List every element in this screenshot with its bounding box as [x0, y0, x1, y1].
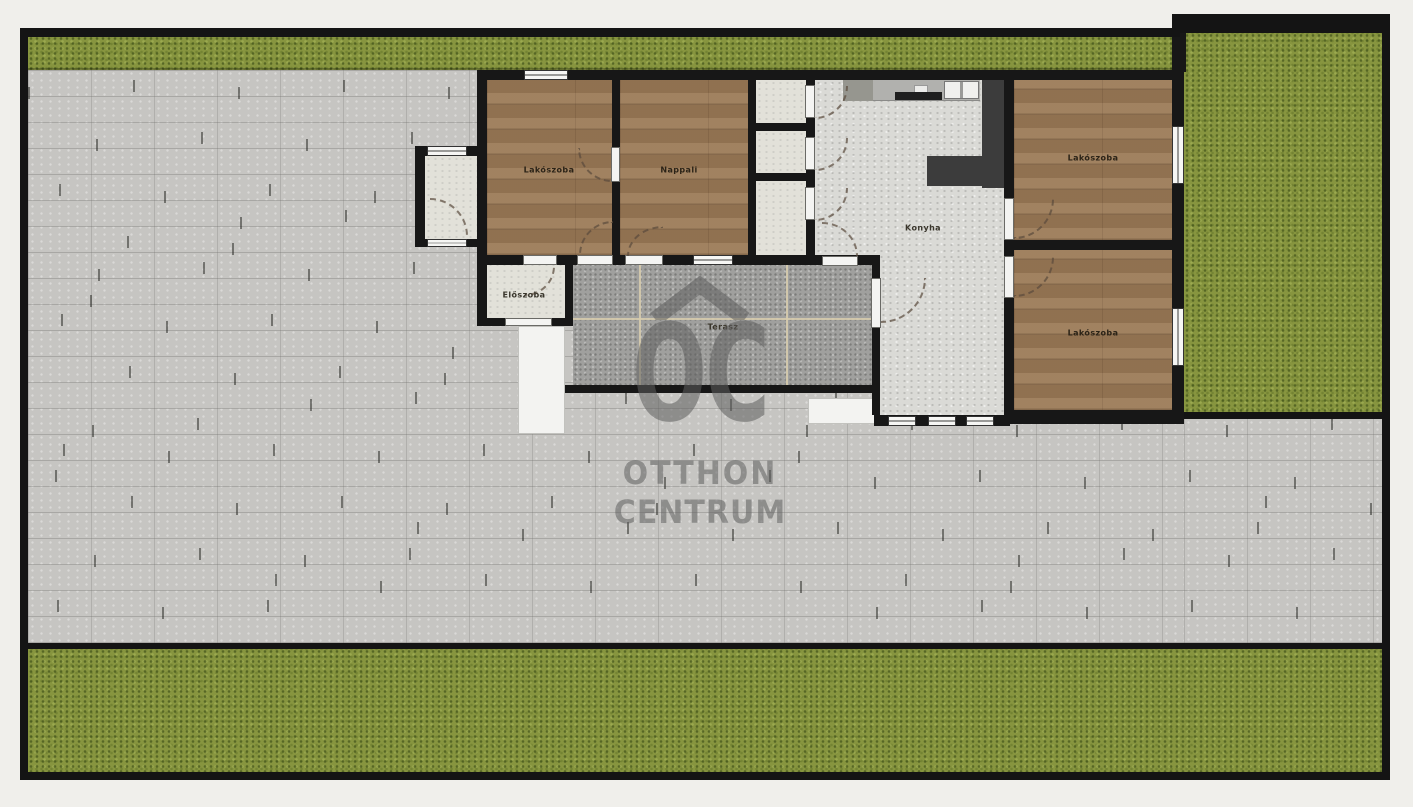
window	[966, 416, 994, 426]
door	[822, 256, 858, 266]
terrace-grid-line	[786, 262, 788, 385]
wall-segment	[748, 123, 815, 131]
wall-segment	[1172, 70, 1184, 424]
wall-segment	[565, 385, 880, 393]
window	[427, 146, 467, 156]
room-label-bedroom-3: Lakószoba	[1068, 329, 1119, 338]
window	[524, 70, 568, 80]
plot-border-top-right-step	[1172, 14, 1390, 33]
plot-border-bottom	[20, 772, 1390, 780]
window	[928, 416, 956, 426]
wall-segment	[1004, 410, 1184, 424]
door	[523, 255, 557, 265]
terrace-step-pad	[808, 398, 876, 424]
door	[611, 147, 620, 182]
room-label-living-room: Nappali	[660, 166, 697, 175]
room-label-bedroom-1: Lakószoba	[524, 166, 575, 175]
plot-border-right	[1382, 14, 1390, 780]
room-label-kitchen: Konyha	[905, 224, 941, 233]
window	[1172, 126, 1184, 184]
entry-walkway	[518, 326, 565, 434]
door	[871, 278, 881, 328]
kitchen-island-horizontal	[927, 156, 1008, 186]
terrace-grid-line	[639, 262, 641, 385]
room-label-entrance-hall: Előszoba	[503, 291, 546, 300]
window	[888, 416, 916, 426]
wall-segment	[415, 146, 425, 247]
kitchen-sink	[944, 81, 979, 99]
wall-segment	[1004, 80, 1014, 424]
wall-segment	[477, 70, 1184, 80]
paved-yard-right	[1184, 419, 1382, 643]
floorplan-canvas: Lakószoba Nappali Konyha Lakószoba Lakós…	[0, 0, 1413, 807]
door	[805, 137, 815, 170]
wall-segment	[1004, 240, 1184, 250]
door	[1004, 256, 1014, 298]
room-label-terrace: Terasz	[708, 323, 739, 332]
door	[805, 85, 815, 118]
wall-segment	[477, 80, 487, 326]
wall-segment	[565, 262, 573, 326]
floor-small-room-2	[756, 131, 806, 173]
entrance-door	[505, 318, 552, 326]
floor-small-room-3	[756, 181, 806, 255]
door	[577, 255, 613, 265]
window	[427, 239, 467, 247]
floor-small-room-1	[756, 80, 806, 123]
terrace-grid-line	[573, 318, 872, 320]
grass-paver-divider-right	[1184, 412, 1382, 419]
grass-bottom	[28, 649, 1382, 772]
plot-border-top	[20, 28, 1180, 37]
room-label-bedroom-2: Lakószoba	[1068, 154, 1119, 163]
grass-top	[28, 36, 1184, 70]
door	[625, 255, 663, 265]
window	[693, 255, 733, 265]
grass-right	[1184, 33, 1382, 412]
plot-border-left	[20, 28, 28, 780]
door	[1004, 198, 1014, 240]
window	[1172, 308, 1184, 366]
wall-segment	[748, 173, 815, 181]
kitchen-cooktop	[895, 92, 942, 100]
door	[805, 187, 815, 220]
